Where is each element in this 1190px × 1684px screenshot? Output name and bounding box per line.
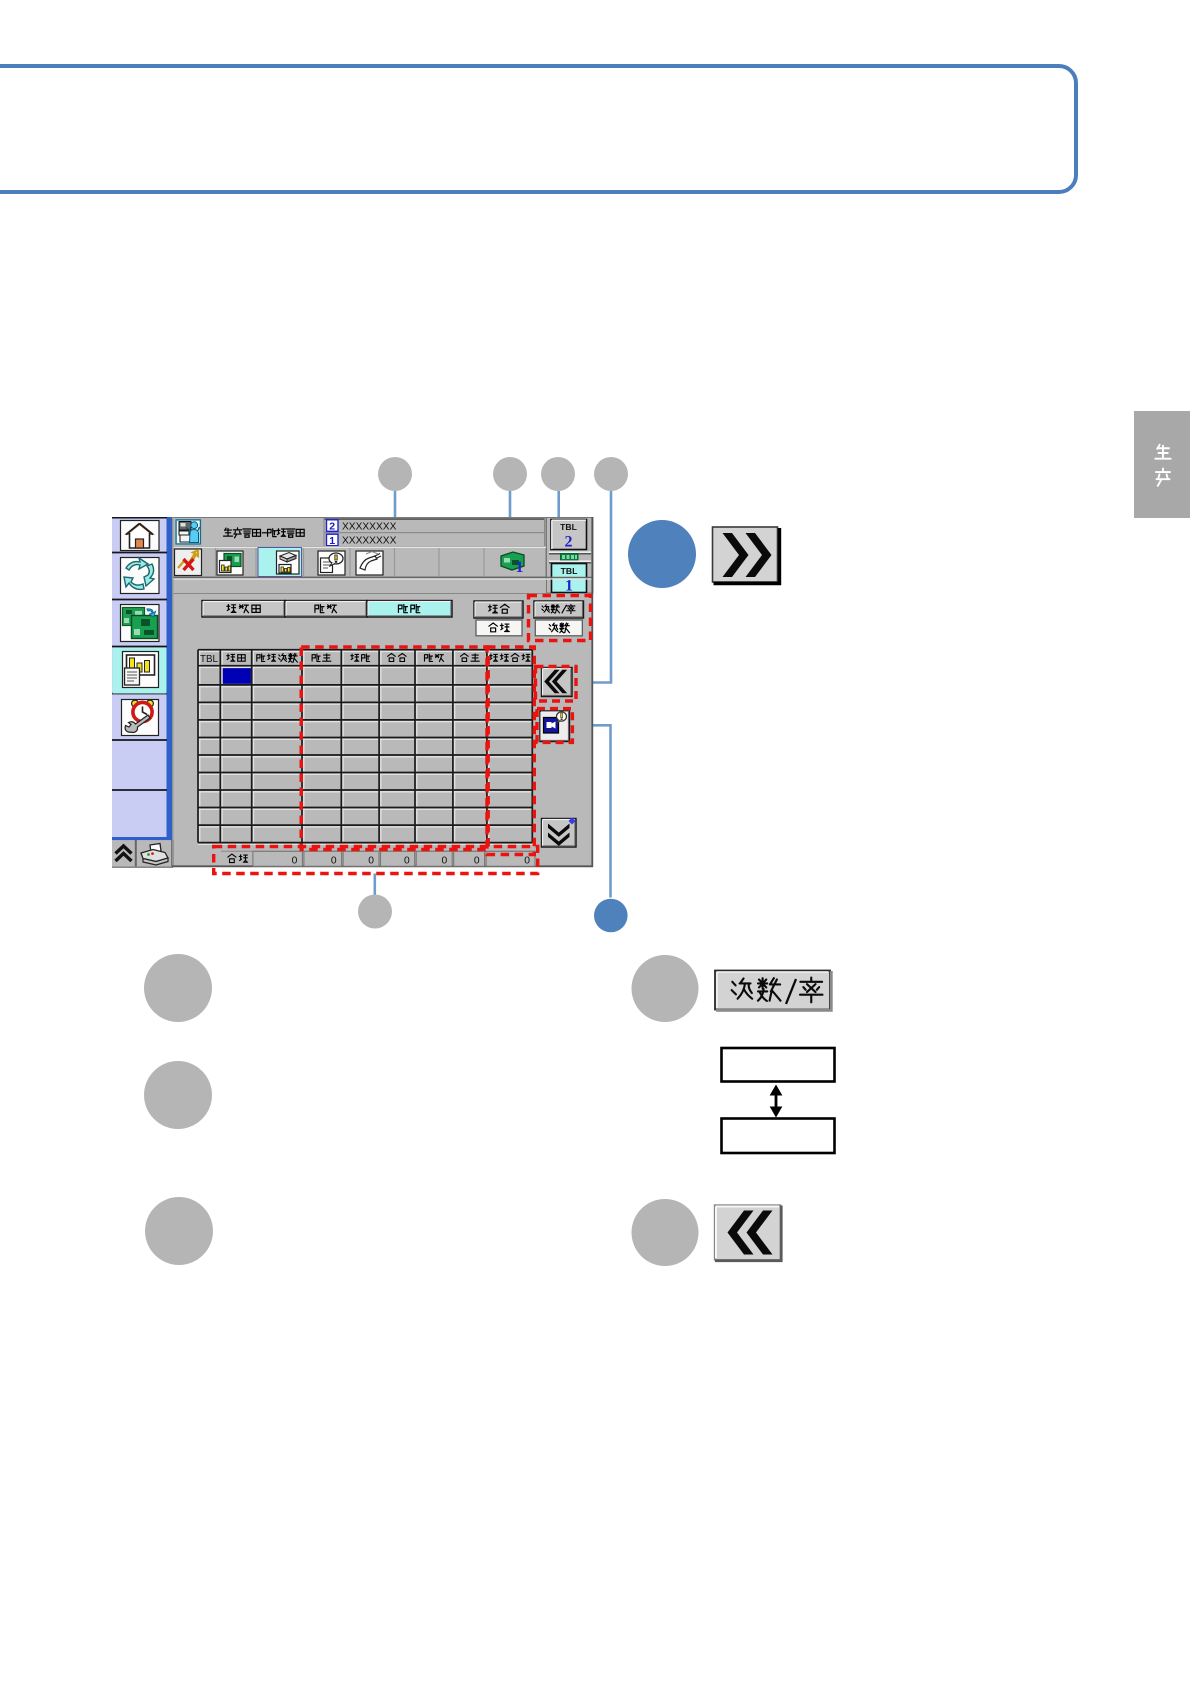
svg-text:0: 0 xyxy=(404,855,410,866)
svg-text:0: 0 xyxy=(524,855,530,866)
svg-text:TBL: TBL xyxy=(561,566,578,576)
svg-text:0: 0 xyxy=(441,855,447,866)
svg-text:1: 1 xyxy=(516,559,524,576)
svg-text:1: 1 xyxy=(329,535,335,547)
svg-text:0: 0 xyxy=(331,855,337,866)
svg-text:TBL: TBL xyxy=(200,654,219,665)
svg-text:2: 2 xyxy=(329,521,335,533)
svg-text:0: 0 xyxy=(368,855,374,866)
svg-text:XXXXXXXX: XXXXXXXX xyxy=(342,536,397,547)
svg-text:1: 1 xyxy=(565,578,573,595)
svg-text:XXXXXXXX: XXXXXXXX xyxy=(342,521,397,532)
svg-text:0: 0 xyxy=(292,855,298,866)
svg-text:2: 2 xyxy=(565,534,573,551)
svg-text:TBL: TBL xyxy=(560,522,577,532)
svg-text:0: 0 xyxy=(474,855,480,866)
